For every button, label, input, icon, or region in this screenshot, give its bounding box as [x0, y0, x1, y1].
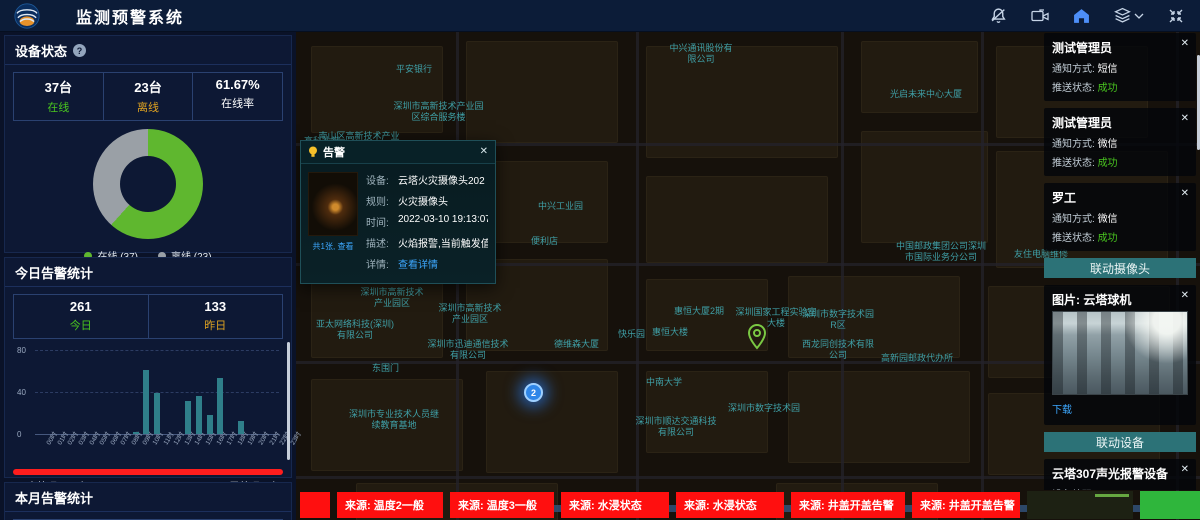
close-icon[interactable]: ✕	[1181, 188, 1189, 199]
ticker-item[interactable]: 来源: 温度3一般	[450, 492, 554, 518]
camera-snapshot-image[interactable]	[1052, 311, 1188, 395]
card-row: 推送状态: 成功	[1052, 229, 1188, 244]
card-row: 通知方式: 微信	[1052, 210, 1188, 225]
map-label: 深圳市高新技术产业园区	[436, 303, 504, 325]
map-label: 深圳市高新技术产业园区综合服务楼	[391, 101, 486, 123]
device-card-list: ✕云塔307声光报警设备设备编码: ffffff100001ab6c调用服务: …	[1044, 459, 1196, 490]
row-label: 推送状态:	[1052, 158, 1098, 169]
bar	[196, 396, 202, 434]
row-label: 推送状态:	[1052, 83, 1098, 94]
alarm-popup-title: 告警	[323, 144, 345, 160]
video-camera-icon[interactable]	[1031, 8, 1049, 23]
stat-value: 23台	[104, 77, 193, 96]
stat-cell: 261今日	[14, 295, 148, 338]
building	[861, 131, 988, 243]
grid-line	[35, 350, 279, 351]
card-row: 推送状态: 成功	[1052, 79, 1188, 94]
row-value: 短信	[1098, 64, 1118, 75]
map-label: 深圳市专业技术人员继续教育基地	[346, 409, 442, 431]
stat-label: 昨日	[149, 317, 283, 333]
row-value: 成功	[1098, 158, 1118, 169]
alert-ticker: 来源: 温度2一般来源: 温度3一般来源: 水浸状态来源: 水浸状态来源: 井盖…	[300, 490, 1200, 520]
row-value: 云塔火灾摄像头202	[398, 172, 485, 187]
device-status-panel: 设备状态 ? 37台在线23台离线61.67%在线率 在线 (37)离线 (23…	[4, 35, 292, 253]
chart-scrollbar[interactable]	[287, 342, 290, 460]
map-label: 东围门	[372, 363, 399, 374]
building	[646, 176, 828, 263]
map-label: 深圳市数字技术园R区	[802, 309, 874, 331]
alarm-thumb-column: 共1张, 查看	[308, 172, 358, 277]
y-tick-label: 0	[17, 430, 21, 439]
today-alarms-header: 今日告警统计	[5, 258, 291, 287]
map-label: 高新园邮政代办所	[881, 353, 953, 364]
close-icon[interactable]: ✕	[1181, 464, 1189, 475]
row-label: 描述:	[366, 235, 398, 250]
chevron-down-icon	[1134, 12, 1144, 20]
row-value: 成功	[1098, 233, 1118, 244]
donut-chart	[93, 129, 203, 239]
hourly-bar-chart: 0408000时01时02时03时04时05时06时07时08时09时10时11…	[11, 343, 285, 461]
bar	[217, 378, 223, 434]
cluster-marker[interactable]: 2	[524, 383, 543, 402]
alarm-detail-row: 规则:火灾摄像头	[366, 193, 488, 208]
today-alarms-panel: 今日告警统计 261今日133昨日 0408000时01时02时03时04时05…	[4, 257, 292, 478]
card-row: 推送状态: 成功	[1052, 154, 1188, 169]
close-icon[interactable]: ✕	[1181, 38, 1189, 49]
card-title: 测试管理员	[1052, 114, 1188, 131]
stat-cell: 61.67%在线率	[192, 73, 282, 120]
notification-card: ✕测试管理员通知方式: 短信推送状态: 成功	[1044, 33, 1196, 101]
alarm-snapshot-link[interactable]: 共1张, 查看	[308, 241, 358, 252]
left-sidebar: 设备状态 ? 37台在线23台离线61.67%在线率 在线 (37)离线 (23…	[0, 31, 296, 520]
row-label: 通知方式:	[1052, 214, 1098, 225]
stat-label: 离线	[104, 99, 193, 115]
row-value: 火焰报警,当前触发值为	[398, 235, 488, 250]
ticker-item[interactable]: 来源: 温度2一般	[337, 492, 443, 518]
stat-cell: 23台离线	[103, 73, 193, 120]
monitoring-dashboard: 监测预警系统	[0, 0, 1200, 520]
page-title: 监测预警系统	[76, 4, 184, 28]
unhandled-progress-bar	[13, 469, 283, 475]
card-title: 测试管理员	[1052, 39, 1188, 56]
alarm-detail-row: 时间:2022-03-10 19:13:07	[366, 214, 488, 229]
building	[486, 371, 618, 473]
layers-icon[interactable]	[1114, 7, 1144, 24]
stat-value: 261	[14, 299, 148, 314]
camera-card: ✕ 图片: 云塔球机 下载	[1044, 285, 1196, 425]
ticker-item[interactable]: 来源: 井盖开盖告警	[912, 492, 1020, 518]
building	[466, 41, 618, 143]
app-logo-icon	[14, 3, 40, 29]
map-label: 惠恒大厦2期	[674, 306, 724, 317]
notifications-icon[interactable]	[990, 7, 1007, 24]
card-title: 罗工	[1052, 189, 1188, 206]
today-alarms-stats: 261今日133昨日	[13, 294, 283, 339]
video-thumbnail[interactable]	[1140, 491, 1200, 519]
map-label: 深圳市数字技术园	[728, 403, 800, 414]
stat-value: 37台	[14, 77, 103, 96]
bar	[133, 432, 139, 434]
road	[636, 31, 639, 520]
stat-cell: 37台在线	[14, 73, 103, 120]
bar	[238, 421, 244, 434]
linked-cameras-section-header[interactable]: 联动摄像头	[1044, 258, 1196, 278]
map-label: 中国邮政集团公司深圳市国际业务分公司	[892, 241, 990, 263]
video-thumbnail[interactable]	[1027, 491, 1133, 519]
row-value: 2022-03-10 19:13:07	[398, 214, 488, 229]
row-value: 微信	[1098, 214, 1118, 225]
camera-card-title: 图片: 云塔球机	[1052, 291, 1188, 308]
alarm-popup-body: 共1张, 查看 设备:云塔火灾摄像头202规则:火灾摄像头时间:2022-03-…	[301, 164, 495, 283]
building	[861, 41, 978, 113]
map-label: 深圳市高新技术产业园区	[358, 287, 426, 309]
stat-label: 今日	[14, 317, 148, 333]
alarm-bulb-icon	[308, 146, 318, 158]
header-bar: 监测预警系统	[0, 0, 1200, 32]
map-label: 平安银行	[396, 64, 432, 75]
ticker-item[interactable]: 来源: 水浸状态	[676, 492, 784, 518]
map-label: 中兴通讯股份有限公司	[668, 43, 734, 65]
road	[981, 31, 984, 520]
bar	[185, 401, 191, 434]
device-card: ✕云塔307声光报警设备设备编码: ffffff100001ab6c调用服务: …	[1044, 459, 1196, 490]
help-icon[interactable]: ?	[73, 44, 86, 57]
home-icon[interactable]	[1073, 8, 1090, 24]
row-label: 推送状态:	[1052, 233, 1098, 244]
stat-value: 133	[149, 299, 283, 314]
map-label: 快乐园	[618, 329, 645, 340]
map-label: 西龙同创技术有限公司	[802, 339, 874, 361]
map-label: 惠恒大楼	[652, 327, 688, 338]
card-row: 通知方式: 短信	[1052, 60, 1188, 75]
card-row: 通知方式: 微信	[1052, 135, 1188, 150]
row-label: 时间:	[366, 214, 398, 229]
notification-card: ✕测试管理员通知方式: 微信推送状态: 成功	[1044, 108, 1196, 176]
card-title: 云塔307声光报警设备	[1052, 465, 1188, 482]
alarm-detail-row: 描述:火焰报警,当前触发值为	[366, 235, 488, 250]
alarm-detail-row: 设备:云塔火灾摄像头202	[366, 172, 488, 187]
row-label: 通知方式:	[1052, 139, 1098, 150]
row-label: 规则:	[366, 193, 398, 208]
alarm-popup-header: 告警 ✕	[301, 141, 495, 164]
close-icon[interactable]: ✕	[1181, 290, 1189, 301]
map-label: 光启未来中心大厦	[871, 89, 981, 100]
month-alarms-header: 本月告警统计	[5, 483, 291, 512]
bar	[143, 370, 149, 434]
close-icon[interactable]: ✕	[1181, 113, 1189, 124]
map-label: 德维森大厦	[554, 339, 599, 350]
device-status-stats: 37台在线23台离线61.67%在线率	[13, 72, 283, 121]
device-status-header: 设备状态 ?	[5, 36, 291, 65]
map-label: 中兴工业园	[538, 201, 583, 212]
map-label: 深圳市顺达交通科技有限公司	[634, 416, 718, 438]
close-icon[interactable]: ✕	[480, 147, 488, 157]
stat-label: 在线率	[193, 95, 282, 111]
download-link[interactable]: 下载	[1052, 405, 1072, 416]
road	[841, 31, 844, 520]
detail-link[interactable]: 查看详情	[398, 256, 438, 271]
map-label: 中南大学	[646, 377, 682, 388]
alarm-detail-rows: 设备:云塔火灾摄像头202规则:火灾摄像头时间:2022-03-10 19:13…	[366, 172, 488, 277]
right-sidebar: ✕测试管理员通知方式: 短信推送状态: 成功✕测试管理员通知方式: 微信推送状态…	[1044, 33, 1196, 490]
row-value: 火灾摄像头	[398, 193, 448, 208]
y-tick-label: 40	[17, 388, 26, 397]
row-label: 通知方式:	[1052, 64, 1098, 75]
notification-card-list: ✕测试管理员通知方式: 短信推送状态: 成功✕测试管理员通知方式: 微信推送状态…	[1044, 33, 1196, 251]
y-tick-label: 80	[17, 346, 26, 355]
alarm-snapshot-image[interactable]	[308, 172, 358, 236]
row-value: 成功	[1098, 83, 1118, 94]
fullscreen-icon[interactable]	[1168, 8, 1184, 24]
donut-chart-wrap	[5, 129, 291, 239]
month-alarms-title: 本月告警统计	[15, 488, 93, 507]
month-alarms-panel: 本月告警统计 763 1146	[4, 482, 292, 520]
row-label: 设备:	[366, 172, 398, 187]
linked-devices-section-header[interactable]: 联动设备	[1044, 432, 1196, 452]
device-status-title: 设备状态	[15, 41, 67, 60]
row-value: 微信	[1098, 139, 1118, 150]
alarm-detail-row: 详情:查看详情	[366, 256, 488, 271]
location-pin-icon[interactable]	[746, 323, 768, 351]
stat-value: 61.67%	[193, 77, 282, 92]
map-label: 亚太网络科技(深圳)有限公司	[314, 319, 396, 341]
row-label: 详情:	[366, 256, 398, 271]
header-actions	[990, 7, 1184, 24]
map-label: 深圳市迅迪通信技术有限公司	[426, 339, 510, 361]
ticker-item[interactable]: 来源: 水浸状态	[561, 492, 669, 518]
ticker-item[interactable]: 来源: 井盖开盖告警	[791, 492, 905, 518]
bar	[154, 393, 160, 434]
map-label: 便利店	[531, 236, 558, 247]
stat-cell: 133昨日	[148, 295, 283, 338]
notification-card: ✕罗工通知方式: 微信推送状态: 成功	[1044, 183, 1196, 251]
alarm-popup: 告警 ✕ 共1张, 查看 设备:云塔火灾摄像头202规则:火灾摄像头时间:202…	[300, 140, 496, 284]
stat-label: 在线	[14, 99, 103, 115]
ticker-item[interactable]	[300, 492, 330, 518]
today-alarms-title: 今日告警统计	[15, 263, 93, 282]
bar	[207, 415, 213, 434]
building	[788, 371, 970, 463]
